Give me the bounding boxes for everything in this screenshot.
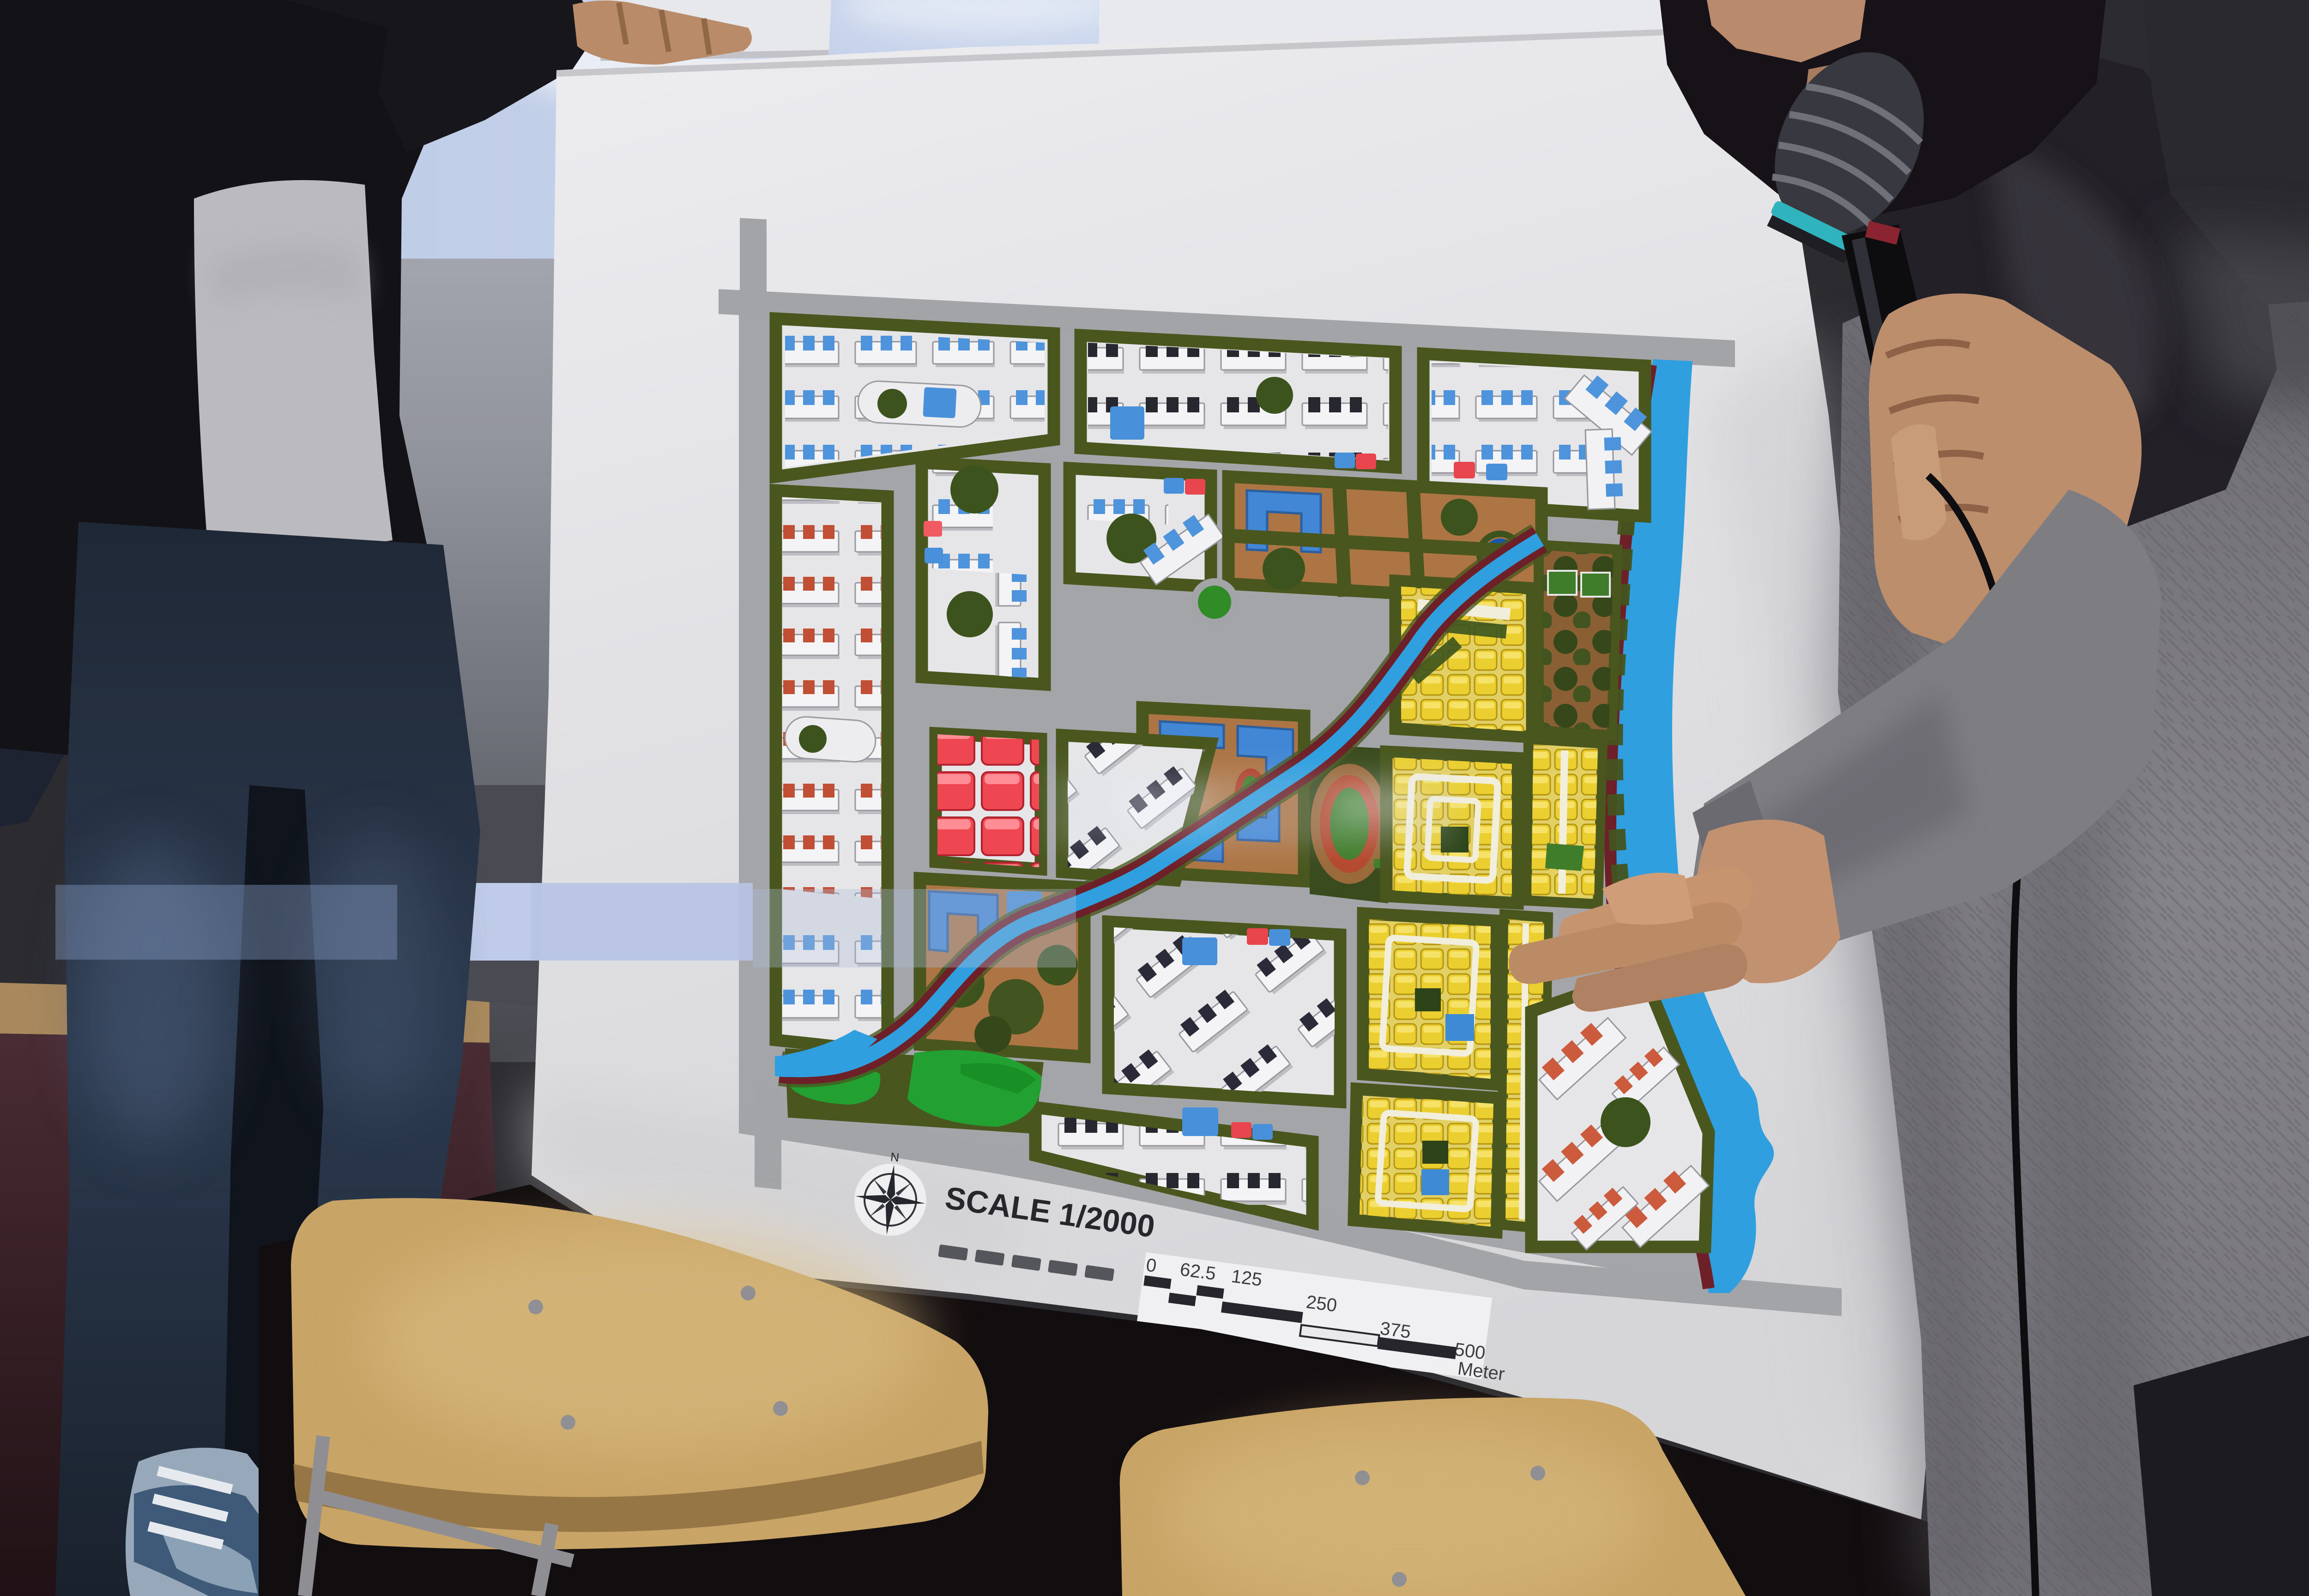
svg-text:125: 125	[1230, 1266, 1263, 1290]
svg-text:N: N	[890, 1150, 900, 1165]
svg-text:250: 250	[1305, 1292, 1338, 1316]
